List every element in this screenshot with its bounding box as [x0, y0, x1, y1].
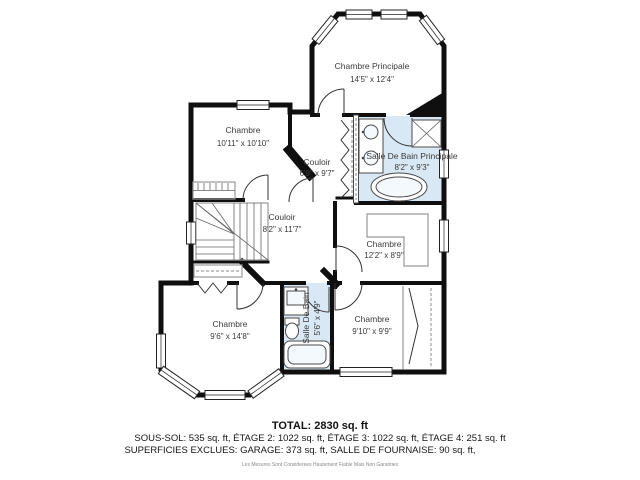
- summary-exclusions: SUPERFICIES EXCLUES: GARAGE: 373 sq. ft,…: [124, 445, 475, 456]
- window: [440, 220, 449, 252]
- window: [187, 222, 196, 244]
- door-arc: [237, 283, 263, 309]
- label-bath-small-dims: 5'6" x 4'9": [313, 300, 322, 335]
- window: [205, 391, 245, 400]
- label-bath-master-dims: 8'2" x 9'3": [395, 163, 430, 172]
- window: [237, 101, 269, 110]
- wall-diagonal: [242, 262, 263, 283]
- under-stairs-closet: [194, 265, 242, 277]
- window: [248, 369, 284, 398]
- shower: [412, 120, 441, 147]
- window: [312, 16, 338, 45]
- summary-disclaimer: Les Mesures Sont Considerees Hautement F…: [242, 462, 399, 468]
- label-master-dims: 14'5" x 12'4": [350, 75, 394, 84]
- label-bedroom-bl-dims: 9'6" x 14'8": [210, 332, 250, 341]
- double-vanity: [359, 119, 383, 173]
- window: [158, 366, 199, 399]
- summary-block: TOTAL: 2830 sq. ft SOUS-SOL: 535 sq. ft,…: [124, 420, 506, 468]
- label-master-name: Chambre Principale: [335, 61, 410, 71]
- window: [346, 10, 372, 19]
- label-hall-upper-dims: 6'9" x 9'7": [300, 169, 335, 178]
- label-bedroom-br-dims: 9'10" x 9'9": [352, 327, 392, 336]
- clothes-rack: [193, 182, 235, 199]
- window: [381, 10, 407, 19]
- label-bath-master-name: Salle De Bain Principale: [366, 151, 457, 161]
- summary-total: TOTAL: 2830 sq. ft: [272, 420, 369, 432]
- door-arc: [243, 175, 268, 200]
- door-arc: [289, 178, 313, 202]
- label-hall-upper-name: Couloir: [304, 157, 331, 167]
- bathtub-small: [284, 341, 330, 368]
- floor-plan: Chambre Principale 14'5" x 12'4" Chambre…: [0, 0, 640, 480]
- label-bedroom-bl-name: Chambre: [213, 319, 248, 329]
- bifold-door: [341, 120, 349, 198]
- label-hall-main-dims: 8'2" x 11'7": [263, 225, 302, 234]
- bifold-door: [409, 288, 418, 364]
- label-bedroom-tl-name: Chambre: [226, 125, 261, 135]
- summary-areas: SOUS-SOL: 535 sq. ft, ÉTAGE 2: 1022 sq. …: [134, 433, 506, 444]
- door-arc: [318, 89, 344, 115]
- window: [157, 334, 166, 368]
- label-bedroom-br-name: Chambre: [355, 314, 390, 324]
- label-bedroom-right-name: Chambre: [367, 239, 402, 249]
- label-bedroom-right-dims: 12'2" x 8'9": [364, 251, 404, 260]
- window: [419, 15, 444, 44]
- wall-corner-fill: [406, 92, 444, 115]
- bifold-door: [197, 283, 229, 293]
- label-bath-small-name: Salle De Bain: [301, 292, 311, 344]
- bathtub-master: [371, 173, 427, 201]
- door-arc: [336, 246, 362, 272]
- label-bedroom-tl-dims: 10'11" x 10'10": [217, 139, 269, 148]
- window: [340, 368, 392, 377]
- label-hall-main-name: Couloir: [269, 212, 296, 222]
- toilet: [285, 318, 299, 339]
- floor-plan-page: Chambre Principale 14'5" x 12'4" Chambre…: [0, 0, 640, 480]
- door-arc: [335, 283, 362, 310]
- stairs: [196, 203, 268, 260]
